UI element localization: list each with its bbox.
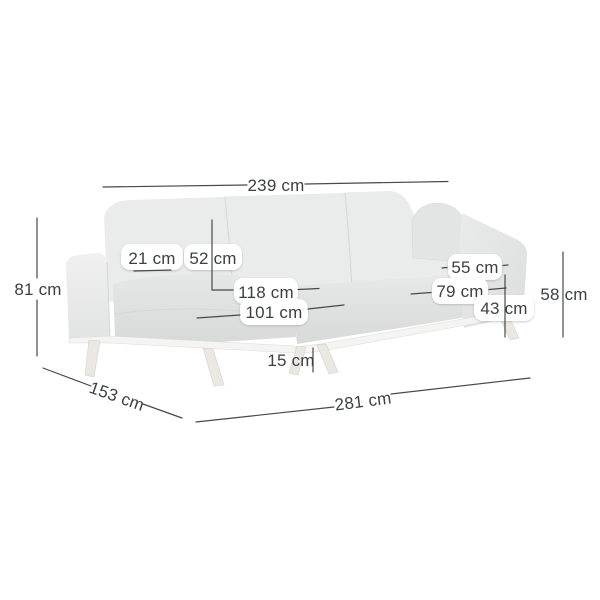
dimension-label: 153 cm (87, 378, 147, 415)
dimension-total-width: 281 cm (196, 378, 530, 422)
dimension-armrest-width: 21 cm (121, 244, 183, 271)
sofa-leg (203, 348, 224, 386)
dimension-top-width: 239 cm (103, 176, 448, 195)
dimension-label: 58 cm (540, 285, 587, 304)
dimension-line (103, 185, 247, 187)
dimension-line (503, 265, 508, 266)
sofa-armrest-left (66, 253, 110, 340)
dimension-label: 101 cm (246, 303, 303, 322)
dimension-line (442, 268, 447, 269)
dimension-label: 21 cm (128, 249, 175, 268)
dimension-line (43, 368, 91, 386)
dimension-leg-height: 15 cm (267, 348, 314, 372)
dimension-seat-depth: 55 cm (442, 254, 508, 280)
dimension-label: 55 cm (451, 258, 498, 277)
dimension-label: 281 cm (334, 388, 393, 414)
dimension-line (143, 404, 182, 418)
dimension-line (305, 182, 448, 185)
dimension-label: 15 cm (267, 351, 314, 370)
dimension-side-depth: 153 cm (43, 368, 182, 418)
dimension-line (196, 407, 334, 422)
sofa-throw-pillow (412, 203, 464, 262)
dimension-line (391, 378, 530, 394)
sofa-leg (85, 340, 100, 377)
dimension-label: 239 cm (248, 176, 305, 195)
dimension-armrest-height: 58 cm (540, 252, 587, 337)
dimension-label: 81 cm (14, 280, 61, 299)
diagram-canvas: 239 cm 81 cm 21 cm 52 cm 118 cm 101 cm 5… (0, 0, 600, 600)
dimension-label: 52 cm (189, 249, 236, 268)
sofa-dimension-diagram: 239 cm 81 cm 21 cm 52 cm 118 cm 101 cm 5… (0, 0, 600, 600)
dimension-label: 43 cm (480, 299, 527, 318)
dimension-total-height: 81 cm (14, 218, 61, 356)
